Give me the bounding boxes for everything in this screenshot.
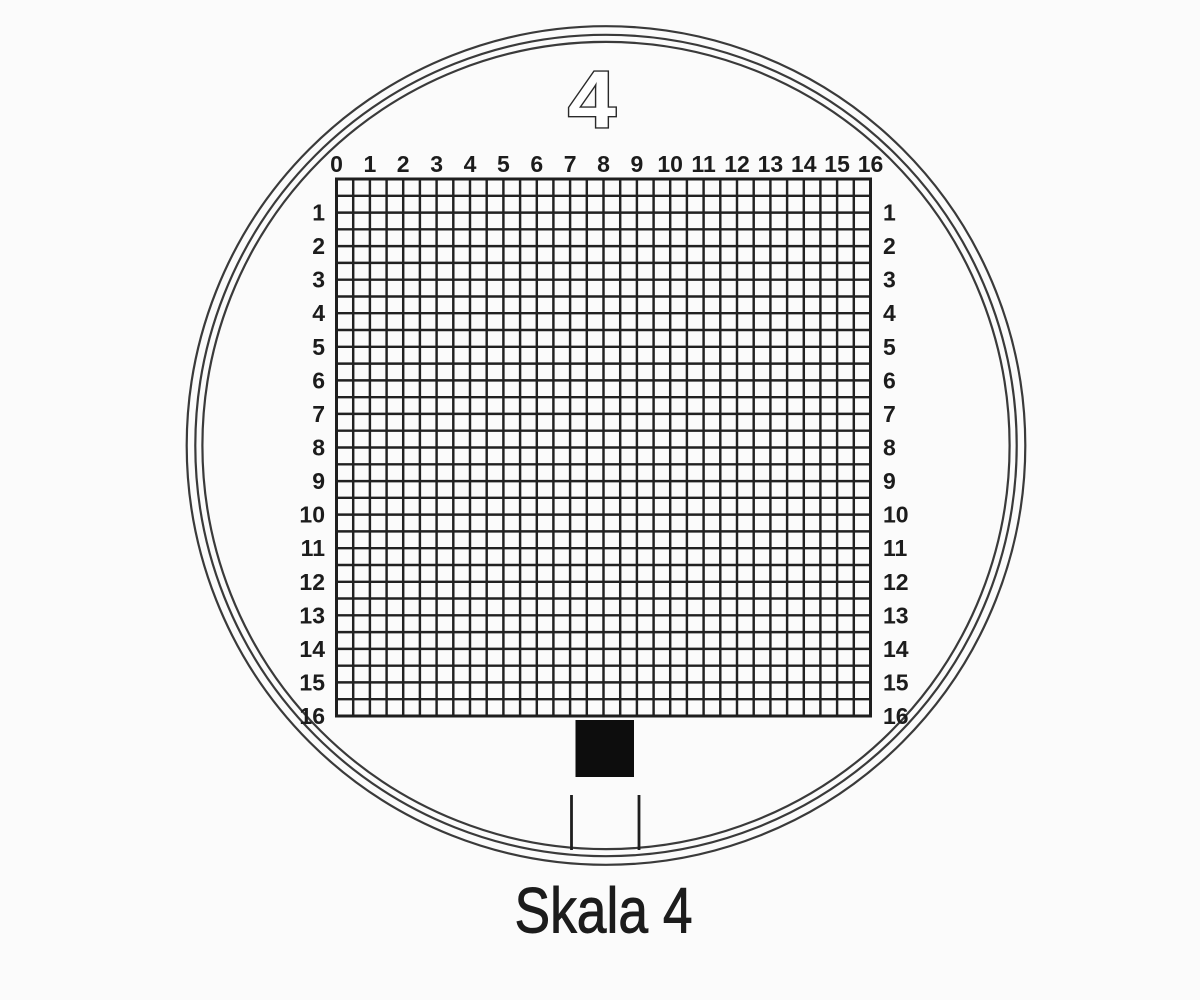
svg-text:15: 15 bbox=[299, 669, 325, 695]
svg-text:4: 4 bbox=[883, 300, 896, 326]
svg-text:3: 3 bbox=[312, 267, 325, 293]
svg-text:10: 10 bbox=[657, 151, 683, 177]
svg-text:9: 9 bbox=[312, 468, 325, 494]
svg-text:3: 3 bbox=[883, 267, 896, 293]
svg-text:5: 5 bbox=[497, 151, 510, 177]
svg-text:11: 11 bbox=[691, 151, 716, 177]
svg-text:16: 16 bbox=[883, 703, 909, 729]
svg-text:7: 7 bbox=[312, 401, 325, 427]
svg-text:11: 11 bbox=[883, 535, 908, 561]
svg-text:5: 5 bbox=[312, 334, 325, 360]
svg-text:10: 10 bbox=[883, 502, 909, 528]
svg-text:Skala 4: Skala 4 bbox=[515, 875, 693, 947]
svg-text:8: 8 bbox=[597, 151, 610, 177]
svg-text:9: 9 bbox=[883, 468, 896, 494]
svg-text:11: 11 bbox=[301, 535, 326, 561]
svg-text:14: 14 bbox=[299, 636, 325, 662]
svg-text:7: 7 bbox=[564, 151, 577, 177]
svg-text:16: 16 bbox=[858, 151, 884, 177]
svg-text:2: 2 bbox=[397, 151, 410, 177]
svg-text:1: 1 bbox=[364, 151, 377, 177]
svg-text:13: 13 bbox=[758, 151, 784, 177]
svg-text:12: 12 bbox=[883, 569, 909, 595]
svg-text:4: 4 bbox=[464, 151, 477, 177]
svg-text:3: 3 bbox=[430, 151, 443, 177]
svg-text:2: 2 bbox=[883, 233, 896, 259]
svg-text:1: 1 bbox=[312, 200, 325, 226]
svg-text:13: 13 bbox=[299, 602, 325, 628]
svg-text:15: 15 bbox=[824, 151, 850, 177]
svg-text:5: 5 bbox=[883, 334, 896, 360]
svg-text:10: 10 bbox=[299, 502, 325, 528]
svg-text:1: 1 bbox=[883, 200, 896, 226]
svg-text:2: 2 bbox=[312, 233, 325, 259]
svg-text:9: 9 bbox=[631, 151, 644, 177]
svg-text:8: 8 bbox=[883, 435, 896, 461]
svg-text:4: 4 bbox=[568, 56, 616, 146]
svg-text:12: 12 bbox=[299, 569, 325, 595]
svg-text:13: 13 bbox=[883, 602, 909, 628]
svg-text:7: 7 bbox=[883, 401, 896, 427]
svg-text:16: 16 bbox=[299, 703, 325, 729]
svg-text:8: 8 bbox=[312, 435, 325, 461]
svg-text:14: 14 bbox=[791, 151, 817, 177]
svg-text:4: 4 bbox=[312, 300, 325, 326]
svg-text:6: 6 bbox=[530, 151, 543, 177]
svg-text:14: 14 bbox=[883, 636, 909, 662]
svg-text:0: 0 bbox=[330, 151, 343, 177]
svg-text:6: 6 bbox=[883, 367, 896, 393]
svg-text:15: 15 bbox=[883, 669, 909, 695]
svg-text:12: 12 bbox=[724, 151, 750, 177]
svg-text:6: 6 bbox=[312, 367, 325, 393]
